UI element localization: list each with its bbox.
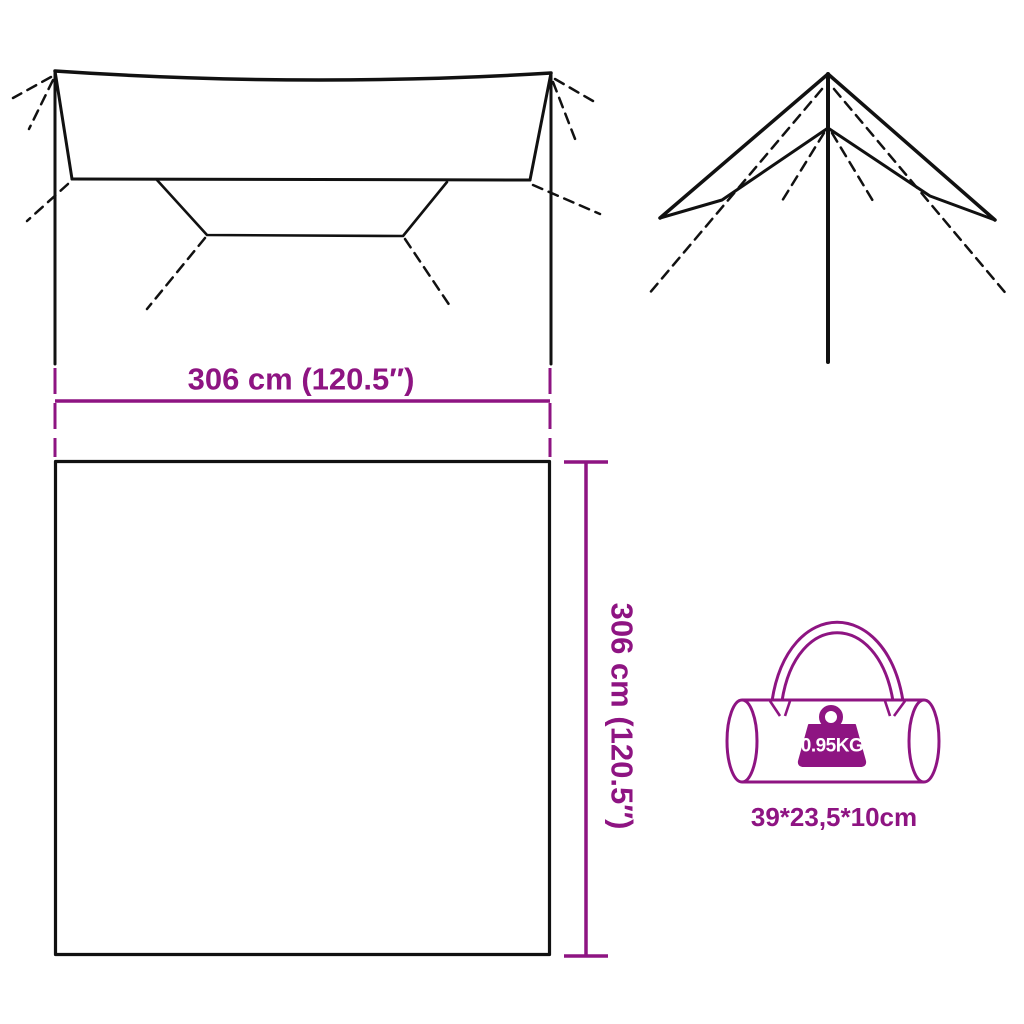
- diagram-canvas: [0, 0, 1024, 1024]
- tarp-top-view-drawing: [13, 71, 600, 364]
- height-dimension-lines: [564, 462, 608, 956]
- tarp-back-panel-outline: [157, 180, 447, 236]
- guy-line-dashes: [13, 77, 600, 309]
- bag-handle: [770, 622, 905, 716]
- bag-weight-label: 0.95KG: [801, 737, 863, 756]
- height-dimension-label: 306 cm (120.5″): [607, 603, 638, 830]
- carry-bag-icon: [727, 622, 939, 782]
- bag-left-endcap: [727, 700, 757, 782]
- inner-ridge-left-line: [660, 128, 828, 218]
- bag-right-endcap: [909, 700, 939, 782]
- bag-size-label: 39*23,5*10cm: [751, 804, 917, 830]
- tarp-pitched-view-drawing: [648, 74, 1008, 362]
- weight-handle-loop: [822, 708, 840, 726]
- width-dimension-label: 306 cm (120.5″): [188, 364, 415, 395]
- inner-ridge-right-line: [828, 128, 995, 220]
- product-dimension-diagram: 306 cm (120.5″) 306 cm (120.5″) 0.95KG 3…: [0, 0, 1024, 1024]
- tarp-flat-outline: [56, 462, 550, 955]
